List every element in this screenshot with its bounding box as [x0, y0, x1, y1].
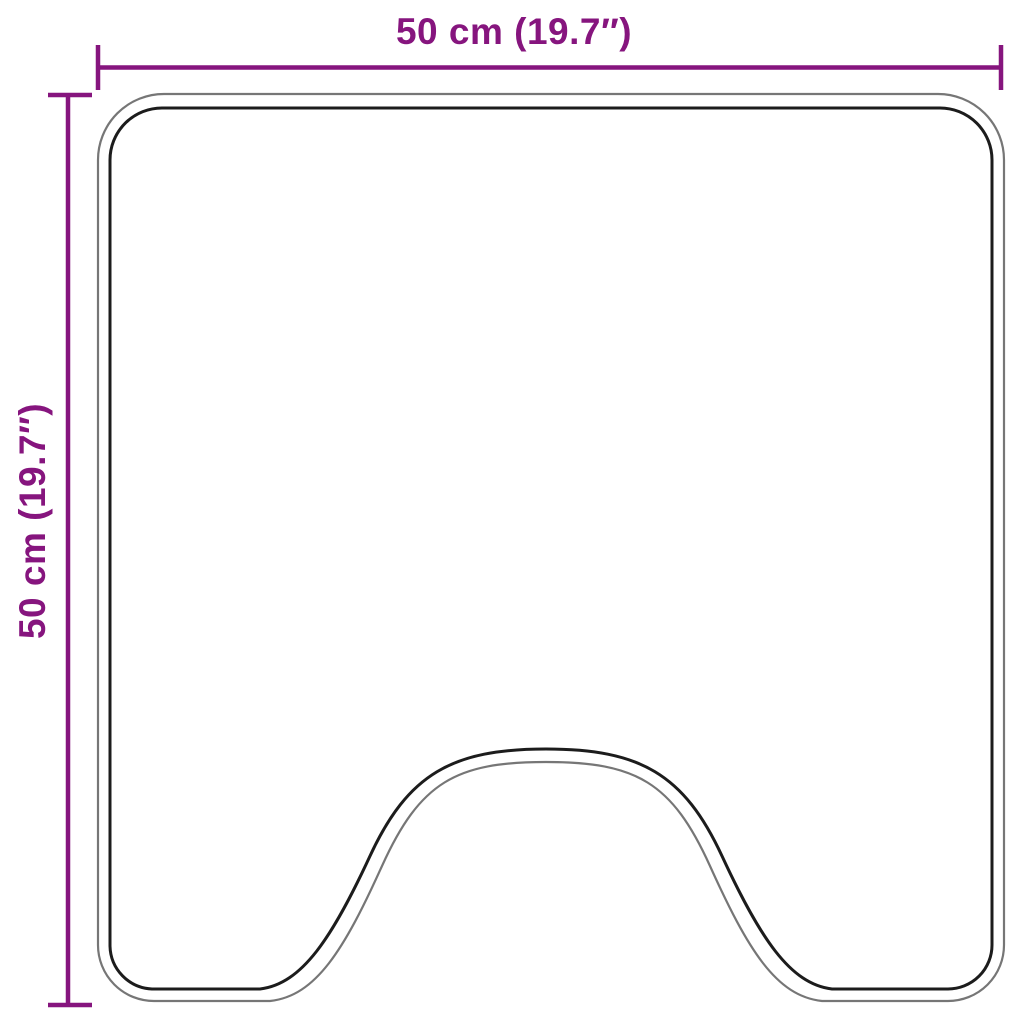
dimension-diagram: 50 cm (19.7″) 50 cm (19.7″) [0, 0, 1024, 1024]
mat-outline-outer [98, 94, 1004, 1001]
width-dimension-label: 50 cm (19.7″) [396, 11, 632, 52]
height-dimension [48, 95, 92, 1005]
diagram-canvas: 50 cm (19.7″) 50 cm (19.7″) [0, 0, 1024, 1024]
mat-outline-inner [110, 108, 992, 989]
height-dimension-label: 50 cm (19.7″) [12, 403, 53, 639]
